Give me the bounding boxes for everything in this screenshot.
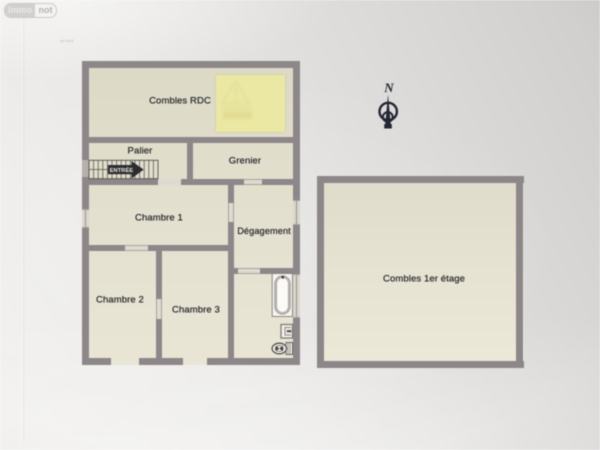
svg-text:N: N xyxy=(383,80,394,95)
svg-text:ENTRÉE: ENTRÉE xyxy=(110,166,134,174)
